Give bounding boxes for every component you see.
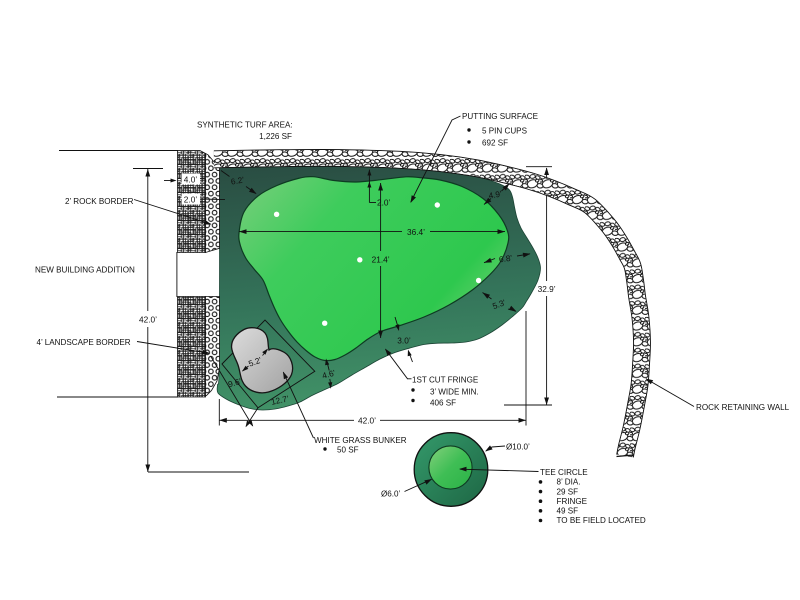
svg-text:1,226 SF: 1,226 SF (259, 132, 292, 141)
svg-text:32.9’: 32.9’ (538, 284, 556, 294)
svg-text:42.0’: 42.0’ (358, 416, 376, 426)
svg-text:NEW BUILDING ADDITION: NEW BUILDING ADDITION (35, 266, 135, 275)
svg-text:1ST CUT FRINGE: 1ST CUT FRINGE (412, 376, 479, 385)
svg-text:Ø6.0’: Ø6.0’ (381, 490, 401, 499)
svg-text:50 SF: 50 SF (337, 446, 359, 455)
svg-text:2.0’: 2.0’ (184, 195, 198, 205)
svg-text:Ø10.0’: Ø10.0’ (506, 443, 530, 452)
svg-text:6.8’: 6.8’ (498, 253, 513, 265)
svg-text:692 SF: 692 SF (482, 139, 508, 148)
svg-text:4.0’: 4.0’ (184, 175, 198, 185)
svg-text:5 PIN CUPS: 5 PIN CUPS (482, 127, 528, 136)
svg-text:3.0’: 3.0’ (397, 336, 411, 346)
svg-text:3’ WIDE MIN.: 3’ WIDE MIN. (430, 388, 479, 397)
svg-text:8’ DIA.: 8’ DIA. (557, 478, 581, 487)
svg-text:21.4’: 21.4’ (372, 255, 390, 265)
svg-text:36.4’: 36.4’ (407, 227, 425, 237)
svg-text:ROCK RETAINING WALL: ROCK RETAINING WALL (696, 403, 790, 412)
svg-text:FRINGE: FRINGE (557, 497, 588, 506)
svg-text:TO BE FIELD LOCATED: TO BE FIELD LOCATED (557, 516, 646, 525)
svg-text:PUTTING SURFACE: PUTTING SURFACE (462, 112, 539, 121)
svg-text:49 SF: 49 SF (557, 507, 579, 516)
svg-text:406 SF: 406 SF (430, 399, 456, 408)
svg-text:SYNTHETIC TURF AREA:: SYNTHETIC TURF AREA: (197, 121, 293, 130)
svg-text:TEE CIRCLE: TEE CIRCLE (540, 468, 588, 477)
svg-text:42.0’: 42.0’ (139, 315, 157, 325)
svg-text:WHITE GRASS BUNKER: WHITE GRASS BUNKER (314, 436, 407, 445)
svg-text:2.0’: 2.0’ (377, 198, 391, 208)
svg-text:4’ LANDSCAPE BORDER: 4’ LANDSCAPE BORDER (37, 338, 131, 347)
svg-text:2’ ROCK BORDER: 2’ ROCK BORDER (65, 197, 134, 206)
svg-text:29 SF: 29 SF (557, 487, 579, 496)
